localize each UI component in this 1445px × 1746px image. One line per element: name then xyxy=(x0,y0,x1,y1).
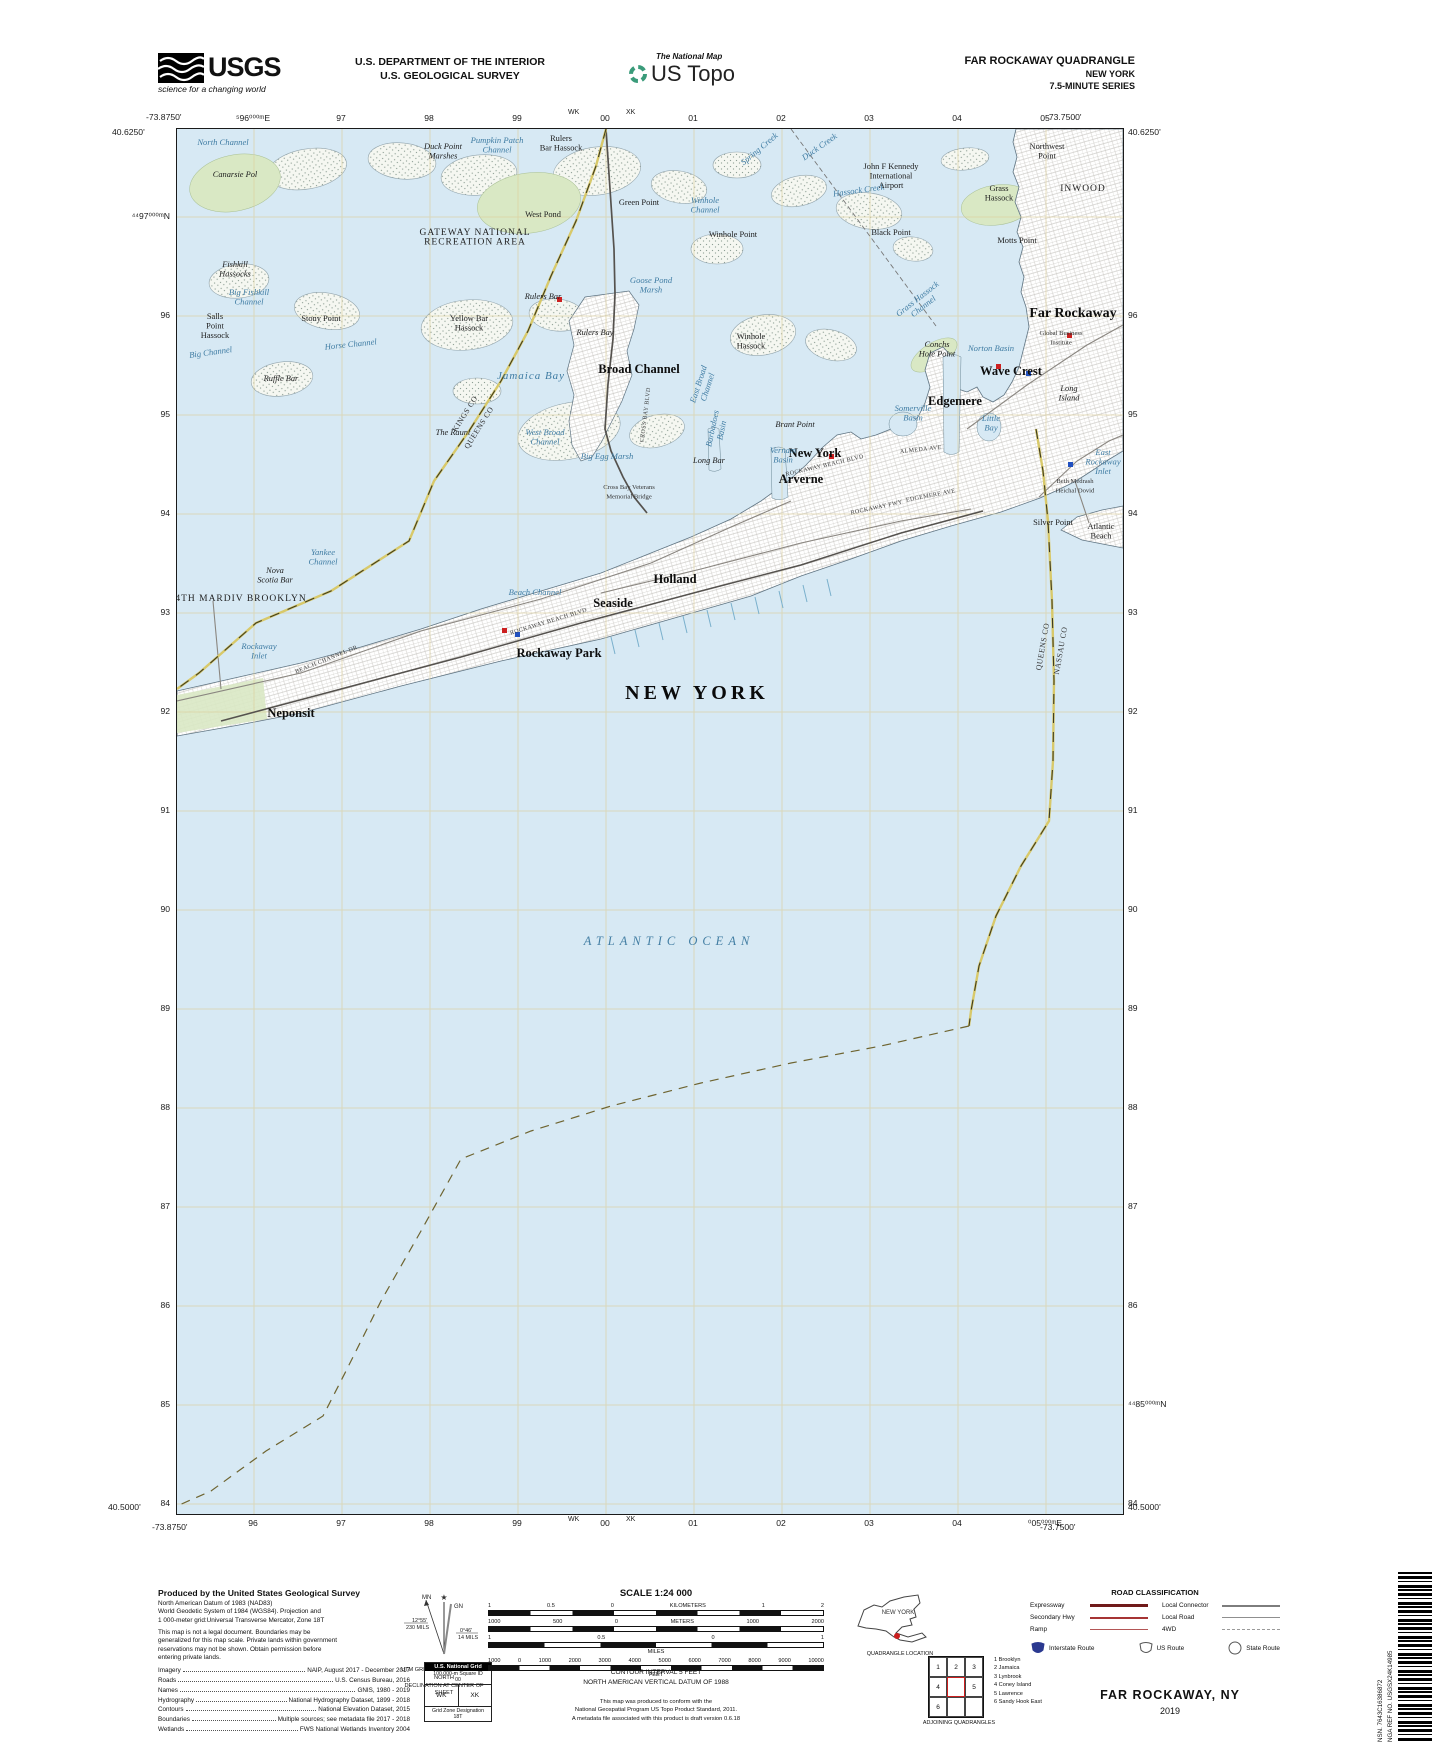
grid-coordinate-label: 96 xyxy=(118,310,170,320)
adjoining-cell: 4 xyxy=(929,1677,947,1697)
grid-coordinate-label: 88 xyxy=(118,1102,170,1112)
quad-state: NEW YORK xyxy=(880,69,1135,79)
grid-coordinate-label: 86 xyxy=(1128,1300,1184,1310)
corner-top-right-lat: 40.6250' xyxy=(1128,127,1161,137)
national-map-label: The National Map xyxy=(656,52,808,61)
map-label: Duck PointMarshes xyxy=(423,142,463,161)
scale-title: SCALE 1:24 000 xyxy=(488,1588,824,1599)
attribution-row: ContoursNational Elevation Dataset, 2015 xyxy=(158,1705,410,1715)
adjoining-name: 6 Sandy Hook East xyxy=(994,1698,1042,1706)
map-label: AtlanticBeach xyxy=(1088,522,1115,541)
grid-coordinate-label: 03 xyxy=(851,113,887,123)
attribution-row: BoundariesMultiple sources; see metadata… xyxy=(158,1715,410,1725)
grid-coordinate-label: 91 xyxy=(118,805,170,815)
map-label: ATLANTIC OCEAN xyxy=(583,934,755,948)
grid-coordinate-label: 97 xyxy=(317,1518,365,1528)
grid-coordinate-label: 95 xyxy=(118,409,170,419)
nsn-number: NSN. 7643C16386872 xyxy=(1377,1680,1384,1742)
map-label: Yellow BarHassock xyxy=(450,314,488,333)
map-label: FishkillHassocks xyxy=(218,260,251,279)
usroute-shield: US Route xyxy=(1138,1641,1185,1655)
legal-note: This map is not a legal document. Bounda… xyxy=(158,1629,410,1662)
grid-coordinate-label: 00 xyxy=(587,113,623,123)
map-label: Seaside xyxy=(593,596,633,610)
attribution-row: RoadsU.S. Census Bureau, 2016 xyxy=(158,1676,410,1686)
grid-coordinate-label: 04 xyxy=(933,1518,981,1528)
grid-coordinate-label: 89 xyxy=(118,1003,170,1013)
adjoining-cell: 3 xyxy=(965,1657,983,1677)
map-label: New York xyxy=(789,446,842,460)
road-class-row: Local Connector xyxy=(1162,1602,1280,1609)
adjoining-cell: 1 xyxy=(929,1657,947,1677)
grid-coordinate-label: 00 xyxy=(581,1518,629,1528)
data-attribution-list: ImageryNAIP, August 2017 - December 2017… xyxy=(158,1666,410,1734)
map-label: Stony Point xyxy=(301,314,341,323)
map-label: Green Point xyxy=(619,198,660,207)
adjoining-cell: 2 xyxy=(947,1657,965,1677)
grid-coordinate-label: 87 xyxy=(118,1201,170,1211)
usgs-tagline: science for a changing world xyxy=(158,84,281,94)
map-label: LittleBay xyxy=(981,413,1000,433)
map-label: Wave Crest xyxy=(980,364,1043,378)
map-label: WinholeChannel xyxy=(690,195,720,215)
map-label: Neponsit xyxy=(267,706,315,720)
quadrangle-location: NEW YORK QUADRANGLE LOCATION xyxy=(836,1592,964,1657)
map-label: Canarsie Pol xyxy=(213,170,258,179)
map-label: 4TH MARDIV BROOKLYN xyxy=(176,594,307,604)
grid-coordinate-label: 94 xyxy=(1128,508,1184,518)
road-class-row: 4WD xyxy=(1162,1626,1280,1633)
catalog-numbers: NSN. 7643C16386872 NGA REF NO. USGSX24K1… xyxy=(1368,1572,1398,1742)
grid-coordinate-label: 87 xyxy=(1128,1201,1184,1211)
road-class-row: Expressway xyxy=(1030,1602,1148,1609)
grid-coordinate-label: ⁴⁴97⁰⁰⁰ᵐN xyxy=(118,211,170,222)
dept-line2: U.S. GEOLOGICAL SURVEY xyxy=(285,69,615,83)
corner-bottom-left-lon: -73.8750' xyxy=(152,1522,188,1532)
map-label: Long Bar xyxy=(692,456,726,465)
scale-bar: 10.50KILOMETERS12 xyxy=(488,1603,824,1616)
map-label: Norton Basin xyxy=(967,343,1014,353)
map-canvas: North ChannelCanarsie PolDuck PointMarsh… xyxy=(176,128,1124,1515)
map-label: Black Point xyxy=(871,228,911,237)
adjoining-cell: 5 xyxy=(965,1677,983,1697)
grid-coordinate-label: 03 xyxy=(845,1518,893,1528)
standard-note: This map was produced to conform with th… xyxy=(488,1698,824,1723)
grid-coordinate-label: 93 xyxy=(118,607,170,617)
sheet-year: 2019 xyxy=(1080,1706,1260,1716)
department-title: U.S. DEPARTMENT OF THE INTERIOR U.S. GEO… xyxy=(285,55,615,83)
map-label: Motts Point xyxy=(997,236,1037,245)
adjoining-cell xyxy=(947,1697,965,1717)
grid-coordinate-label: 93 xyxy=(1128,607,1184,617)
grid-coordinate-label: 04 xyxy=(939,113,975,123)
usng-square-right: XK xyxy=(459,1685,492,1706)
adjoining-caption: ADJOINING QUADRANGLES xyxy=(900,1720,1018,1726)
adjoining-cell xyxy=(947,1677,965,1697)
scale-bar: 10005000METERS10002000 xyxy=(488,1619,824,1632)
map-label: NEW YORK xyxy=(625,682,769,704)
grid-coordinate-label: ⁴⁴85⁰⁰⁰ᵐN xyxy=(1128,1399,1184,1410)
grid-coordinate-label: 95 xyxy=(1128,409,1184,419)
adjoining-quadrangles-names: 1 Brooklyn2 Jamaica3 Lynbrook4 Coney Isl… xyxy=(994,1656,1042,1706)
adjoining-quadrangles-grid: 123456 xyxy=(928,1656,984,1718)
usgs-topo-sheet: USGS science for a changing world U.S. D… xyxy=(0,0,1445,1746)
map-label: Rulers Bay xyxy=(576,328,614,337)
grid-coordinate-label: 88 xyxy=(1128,1102,1184,1112)
map-label: West BroadChannel xyxy=(525,427,565,447)
state-shield: State Route xyxy=(1227,1641,1280,1655)
road-class-row: Secondary Hwy xyxy=(1030,1614,1148,1621)
ustopo-wordmark: US Topo xyxy=(651,61,735,87)
adjoining-name: 1 Brooklyn xyxy=(994,1656,1042,1664)
map-label: GATEWAY NATIONALRECREATION AREA xyxy=(419,228,530,248)
grid-coordinate-label: 98 xyxy=(411,113,447,123)
usgs-logo: USGS science for a changing world xyxy=(158,52,281,94)
new-york-state-icon: NEW YORK xyxy=(850,1592,950,1644)
corner-top-left-lat: 40.6250' xyxy=(112,127,145,137)
map-label: INWOOD xyxy=(1060,184,1106,194)
nga-ref-number: NGA REF NO. USGSX24K14985 xyxy=(1387,1651,1394,1742)
map-label: Brant Point xyxy=(775,420,815,429)
svg-text:230 MILS: 230 MILS xyxy=(406,1625,429,1631)
map-label: Jamaica Bay xyxy=(497,370,565,382)
quadrangle-title: FAR ROCKAWAY QUADRANGLE NEW YORK 7.5-MIN… xyxy=(880,55,1135,91)
grid-coordinate-label: 90 xyxy=(118,904,170,914)
grid-coordinate-label: 86 xyxy=(118,1300,170,1310)
grid-coordinate-label: 85 xyxy=(118,1399,170,1409)
map-label: Beach Channel xyxy=(509,587,562,597)
map-label: Ruffle Bar xyxy=(263,374,299,383)
usng-square-left: WK xyxy=(425,1685,459,1706)
road-class-row: Local Road xyxy=(1162,1614,1280,1621)
grid-coordinate-label: ⁵96⁰⁰⁰ᵐE xyxy=(235,113,271,124)
grid-coordinate-label: ⁰05⁰⁰⁰ᵐE xyxy=(1021,1518,1069,1529)
svg-text:NEW YORK: NEW YORK xyxy=(882,1610,915,1616)
grid-coordinate-label: 01 xyxy=(675,113,711,123)
ustopo-icon xyxy=(628,64,648,84)
sheet-title: FAR ROCKAWAY, NY 2019 xyxy=(1080,1688,1260,1716)
quad-name: FAR ROCKAWAY QUADRANGLE xyxy=(880,55,1135,67)
map-label: Silver Point xyxy=(1033,518,1073,527)
grid-coordinate-label: 90 xyxy=(1128,904,1184,914)
grid-coordinate-label: WK xyxy=(568,109,579,116)
scale-bars: 10.50KILOMETERS1210005000METERS100020001… xyxy=(488,1603,824,1678)
svg-text:MN: MN xyxy=(422,1595,431,1601)
grid-coordinate-label: XK xyxy=(626,1516,635,1523)
grid-coordinate-label: 99 xyxy=(499,113,535,123)
grid-coordinate-label: 94 xyxy=(118,508,170,518)
map-label: VernamBasin xyxy=(770,445,796,465)
adjoining-name: 5 Lawrence xyxy=(994,1690,1042,1698)
map-label: North Channel xyxy=(196,137,249,147)
grid-coordinate-label: 92 xyxy=(118,706,170,716)
grid-coordinate-label: 02 xyxy=(763,113,799,123)
scale-bar: 10.501MILES xyxy=(488,1635,824,1655)
usng-title: U.S. National Grid xyxy=(425,1663,491,1671)
svg-text:14 MILS: 14 MILS xyxy=(458,1635,478,1641)
map-label: WinholeHassock xyxy=(737,332,766,351)
attribution-row: HydrographyNational Hydrography Dataset,… xyxy=(158,1696,410,1706)
map-label: LongIsland xyxy=(1058,384,1081,403)
attribution-row: WetlandsFWS National Wetlands Inventory … xyxy=(158,1725,410,1735)
map-label: Edgemere xyxy=(928,394,982,408)
interstate-shield: Interstate Route xyxy=(1030,1641,1094,1655)
usng-box: U.S. National Grid 100,000-m Square ID 0… xyxy=(424,1662,492,1722)
usgs-wave-icon xyxy=(158,53,204,83)
usng-zone: Grid Zone Designation 18T xyxy=(425,1707,491,1721)
road-class-title: ROAD CLASSIFICATION xyxy=(1030,1588,1280,1597)
grid-coordinate-label: 84 xyxy=(118,1498,170,1508)
grid-coordinate-label: 89 xyxy=(1128,1003,1184,1013)
grid-coordinate-label: WK xyxy=(568,1516,579,1523)
map-label: Far Rockaway xyxy=(1029,306,1116,321)
datum-note: North American Datum of 1983 (NAD83) Wor… xyxy=(158,1600,410,1625)
map-label: YankeeChannel xyxy=(308,547,338,567)
grid-coordinate-label: 97 xyxy=(323,113,359,123)
adjoining-cell: 6 xyxy=(929,1697,947,1717)
map-label: Winhole Point xyxy=(709,230,758,239)
map-label: Rockaway Park xyxy=(516,646,601,660)
produced-by: Produced by the United States Geological… xyxy=(158,1588,410,1598)
sheet-name: FAR ROCKAWAY, NY xyxy=(1080,1688,1260,1702)
corner-top-left-lon: -73.8750' xyxy=(146,112,182,122)
contour-note: CONTOUR INTERVAL 5 FEET NORTH AMERICAN V… xyxy=(488,1668,824,1688)
adjoining-name: 4 Coney Island xyxy=(994,1681,1042,1689)
map-label: Holland xyxy=(653,572,696,586)
road-class-row: Ramp xyxy=(1030,1626,1148,1633)
map-label: Big Egg Marsh xyxy=(581,451,634,461)
grid-coordinate-label: 05 xyxy=(1027,113,1063,123)
barcode xyxy=(1398,1572,1432,1742)
grid-coordinate-label: 91 xyxy=(1128,805,1184,815)
grid-coordinate-label: 84 xyxy=(1128,1498,1184,1508)
ustopo-logo: The National Map US Topo xyxy=(628,52,808,87)
attribution-row: NamesGNIS, 1980 - 2019 xyxy=(158,1686,410,1696)
grid-coordinate-label: 02 xyxy=(757,1518,805,1528)
map-label: Broad Channel xyxy=(598,362,680,376)
map-label: West Pond xyxy=(525,210,562,219)
quad-series: 7.5-MINUTE SERIES xyxy=(880,81,1135,91)
attribution-row: ImageryNAIP, August 2017 - December 2017 xyxy=(158,1666,410,1676)
svg-text:★: ★ xyxy=(440,1593,447,1602)
dept-line1: U.S. DEPARTMENT OF THE INTERIOR xyxy=(285,55,615,69)
adjoining-cell xyxy=(965,1697,983,1717)
map-label: Rulers Bar xyxy=(524,292,562,301)
svg-text:GN: GN xyxy=(454,1604,463,1610)
production-credits: Produced by the United States Geological… xyxy=(158,1588,410,1735)
grid-coordinate-label: 96 xyxy=(229,1518,277,1528)
adjoining-name: 2 Jamaica xyxy=(994,1664,1042,1672)
road-classification-legend: ROAD CLASSIFICATION ExpresswaySecondary … xyxy=(1030,1588,1280,1655)
grid-coordinate-label: 96 xyxy=(1128,310,1184,320)
grid-coordinate-label: 01 xyxy=(669,1518,717,1528)
grid-coordinate-label: 92 xyxy=(1128,706,1184,716)
grid-coordinate-label: XK xyxy=(626,109,635,116)
usng-center: 00 xyxy=(425,1677,491,1683)
grid-coordinate-label: 98 xyxy=(405,1518,453,1528)
adjoining-name: 3 Lynbrook xyxy=(994,1673,1042,1681)
grid-coordinate-label: 99 xyxy=(493,1518,541,1528)
usgs-wordmark: USGS xyxy=(208,52,281,83)
